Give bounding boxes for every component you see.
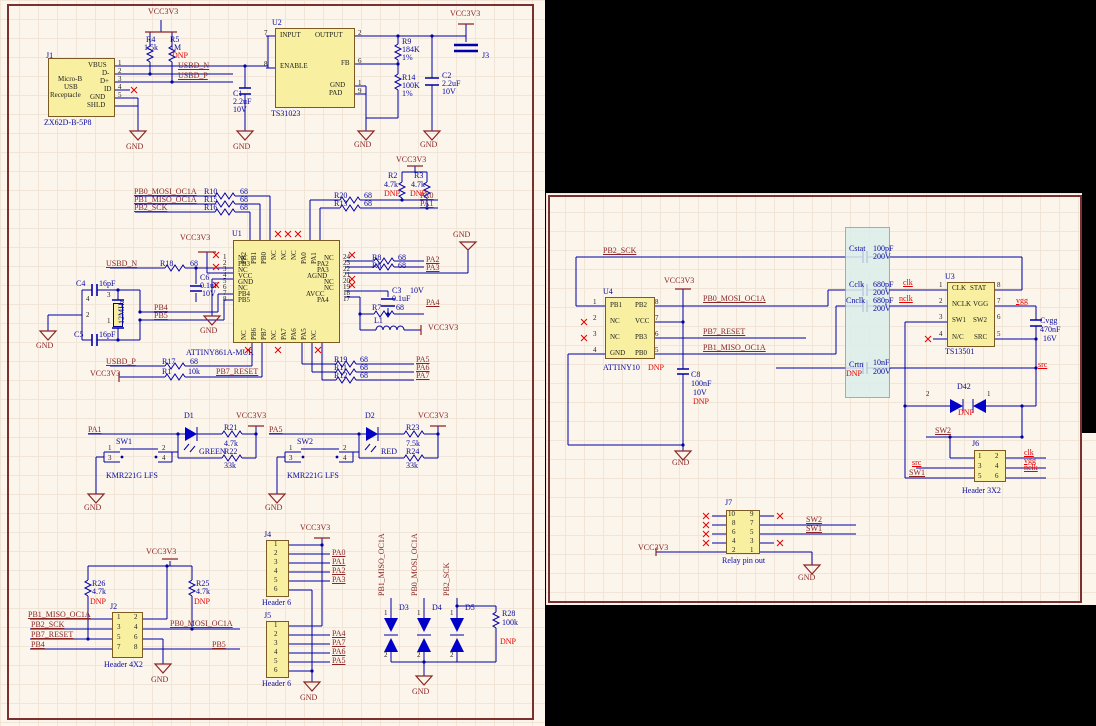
pin-number: 5 (655, 347, 659, 354)
pin-number: 3 (939, 314, 943, 321)
designator-label: ATTINY861A-MUR (186, 349, 254, 357)
pin-name: ID (104, 86, 111, 93)
pin-number: 4 (86, 296, 90, 303)
net-label: PA6 (332, 648, 346, 656)
designator-label: R1 (162, 368, 171, 376)
designator-label: TS13501 (945, 348, 974, 356)
power-label: GND (126, 143, 143, 151)
pin-number: 9 (750, 511, 754, 518)
net-label: PA3 (332, 576, 346, 584)
pin-name: Receptacle (50, 92, 81, 99)
pin-number: 5 (997, 331, 1001, 338)
pin-number: 3 (289, 455, 293, 462)
designator-label: Cvgg (1040, 317, 1057, 325)
power-label: GND (200, 327, 217, 335)
pin-name: PB3 (635, 334, 647, 341)
power-label: VCC3V3 (664, 277, 694, 285)
designator-label: TS31023 (271, 110, 300, 118)
designator-label: 10V (693, 389, 707, 397)
pin-number: 1 (274, 541, 278, 548)
designator-label: 68 (398, 262, 406, 270)
designator-label: 16pF (99, 280, 115, 288)
pin-number: 3 (274, 640, 278, 647)
pin-number: 6 (274, 667, 278, 674)
pin-number: 4 (995, 463, 999, 470)
signal-label: src (1038, 361, 1047, 369)
net-label: PB5 (154, 312, 168, 320)
designator-label: 200V (873, 253, 891, 261)
designator-label: 10V (233, 106, 247, 114)
signal-label: vgg (1016, 297, 1028, 305)
pin-name-vertical: PB6 (251, 328, 258, 340)
net-label-vertical: PB1_MISO_OC1A (378, 533, 386, 596)
designator-label: D3 (399, 604, 409, 612)
pin-number: 2 (162, 445, 166, 452)
schematic-sheet-right[interactable]: PB2_SCKU4ATTINY10DNP12348765PB1NCNCGNDPB… (546, 193, 1096, 605)
power-label: GND (84, 504, 101, 512)
net-label: PB1_MISO_OC1A (703, 344, 766, 352)
designator-label: 33k (224, 462, 236, 470)
dnp-flag: DNP (172, 52, 188, 60)
designator-label: Crtn (849, 361, 863, 369)
dnp-flag: DNP (846, 370, 862, 378)
net-label: PB7_RESET (216, 368, 258, 376)
pin-number: 4 (274, 649, 278, 656)
power-label: GND (453, 231, 470, 239)
designator-label: R7 (372, 304, 381, 312)
pin-name: PAD (329, 90, 342, 97)
net-label: USBD_P (106, 358, 136, 366)
pin-name: SRC (974, 334, 987, 341)
net-label: PA1 (420, 200, 434, 208)
pin-number: 4 (343, 455, 347, 462)
designator-label: SW2 (297, 438, 313, 446)
net-label: PA4 (332, 630, 346, 638)
pin-name: STAT (970, 285, 986, 292)
pin-name: D- (102, 70, 109, 77)
power-label: GND (233, 143, 250, 151)
net-label: PA1 (88, 426, 102, 434)
pin-number: 2 (939, 298, 943, 305)
pin-number: 2 (417, 652, 421, 659)
pin-number: 17 (343, 296, 350, 303)
pin-number: 2 (274, 550, 278, 557)
signal-label: nclk (1024, 464, 1038, 472)
pin-number: 4 (162, 455, 166, 462)
designator-label: D1 (184, 412, 194, 420)
designator-label: 16V (1043, 335, 1057, 343)
designator-label: Header 6 (262, 680, 291, 688)
pin-number: 1 (384, 610, 388, 617)
designator-label: 4.7k (384, 181, 398, 189)
designator-label: 0.1uF (392, 295, 410, 303)
dnp-flag: DNP (500, 638, 516, 646)
pin-number: 2 (995, 453, 999, 460)
pin-name: PB1 (610, 302, 622, 309)
power-label: GND (265, 504, 282, 512)
pin-number: 6 (732, 529, 736, 536)
net-label: PA7 (332, 639, 346, 647)
solder-jumper-J3 (454, 45, 478, 51)
pin-name: PB5 (238, 297, 250, 304)
schematic-sheet-left[interactable]: VCC3V3R41.5kR51MDNPJ1VBUSD-D+IDGNDSHLDMi… (0, 0, 545, 726)
pin-number: 7 (264, 30, 268, 37)
pin-name: PA4 (317, 297, 329, 304)
designator-label: KMR221G LFS (106, 472, 158, 480)
net-label: SW2 (935, 427, 951, 435)
pin-number: 4 (134, 624, 138, 631)
pin-number: 2 (343, 445, 347, 452)
dnp-flag: DNP (693, 398, 709, 406)
pin-number: 6 (134, 634, 138, 641)
pin-number: 6 (995, 473, 999, 480)
net-label: PB4 (31, 641, 45, 649)
pin-name: OUTPUT (315, 32, 343, 39)
designator-label: J6 (972, 440, 979, 448)
pin-number: 4 (118, 84, 122, 91)
designator-label: 68 (360, 372, 368, 380)
designator-label: R21 (224, 424, 237, 432)
dnp-flag: DNP (90, 598, 106, 606)
designator-label: R13 (334, 200, 347, 208)
net-label: PA2 (332, 567, 346, 575)
power-label: GND (300, 694, 317, 702)
designator-label: C5 (74, 331, 83, 339)
designator-label: R28 (502, 610, 515, 618)
pin-name-vertical: NC (311, 330, 318, 340)
power-label: GND (151, 676, 168, 684)
net-label: PA5 (332, 657, 346, 665)
power-label: VCC3V3 (638, 544, 668, 552)
pin-number: 4 (732, 538, 736, 545)
power-label: GND (798, 574, 815, 582)
pin-name: NCLK (952, 301, 971, 308)
designator-label: RED (381, 448, 397, 456)
designator-label: R6 (372, 262, 381, 270)
designator-label: 4.7k (411, 181, 425, 189)
pin-number: 1 (274, 622, 278, 629)
pin-number: 1 (417, 610, 421, 617)
designator-label: 4.7k (196, 588, 210, 596)
net-label: PA4 (426, 299, 440, 307)
designator-label: Cclk (849, 281, 864, 289)
designator-label: R16 (204, 204, 217, 212)
pin-number: 3 (107, 292, 111, 299)
schematic-editor-canvas: { "colors":{"background":"#000000","shee… (0, 0, 1096, 726)
designator-label: GREEN (199, 448, 226, 456)
pin-name: D+ (100, 78, 109, 85)
dnp-flag: DNP (958, 409, 974, 417)
designator-label: J1 (46, 52, 53, 60)
pin-number: 2 (134, 614, 138, 621)
pin-number: 3 (108, 455, 112, 462)
power-label: GND (672, 459, 689, 467)
designator-label: ATTINY10 (603, 364, 640, 372)
designator-label: L1 (374, 317, 383, 325)
power-label: VCC3V3 (236, 412, 266, 420)
designator-label: Header 3X2 (962, 487, 1001, 495)
pin-name-vertical: NC (291, 250, 298, 260)
pin-number: 6 (655, 331, 659, 338)
pin-number: 2 (926, 391, 930, 398)
designator-label: 68 (190, 260, 198, 268)
net-label: PB1_MISO_OC1A (28, 611, 91, 619)
pin-name: SW2 (973, 317, 987, 324)
designator-label: U2 (272, 19, 282, 27)
value-label-vertical: 12MHz (118, 300, 126, 324)
designator-label: 68 (240, 204, 248, 212)
net-label: PA5 (269, 426, 283, 434)
designator-label: D42 (957, 383, 971, 391)
pin-number: 3 (978, 463, 982, 470)
designator-label: C4 (76, 280, 85, 288)
pin-name: VCC (635, 318, 649, 325)
designator-label: 10V (410, 287, 424, 295)
designator-label: KMR221G LFS (287, 472, 339, 480)
designator-label: 68 (364, 200, 372, 208)
net-label: PB0_MOSI_OC1A (170, 620, 233, 628)
pin-number: 5 (118, 92, 122, 99)
designator-label: Relay pin out (722, 557, 765, 565)
pin-name-vertical: PB0 (261, 252, 268, 264)
designator-label: R22 (224, 448, 237, 456)
designator-label: J7 (725, 499, 732, 507)
pin-number: 2 (358, 30, 362, 37)
pin-name-vertical: PA0 (301, 252, 308, 264)
pin-number: 7 (997, 298, 1001, 305)
power-label: VCC3V3 (450, 10, 480, 18)
pin-name: PB2 (635, 302, 647, 309)
pin-number: 3 (274, 559, 278, 566)
designator-label: D4 (432, 604, 442, 612)
pin-name: GND (610, 350, 625, 357)
net-label: PB0_MOSI_OC1A (703, 295, 766, 303)
pin-number: 1 (750, 547, 754, 554)
dnp-flag: DNP (384, 190, 400, 198)
pin-name: NC (610, 334, 620, 341)
signal-label: nclk (899, 295, 913, 303)
designator-label: Header 4X2 (104, 661, 143, 669)
designator-label: 10k (188, 368, 200, 376)
designator-label: D5 (465, 604, 475, 612)
designator-label: R2 (388, 172, 397, 180)
designator-label: R12 (334, 372, 347, 380)
pin-number: 2 (732, 547, 736, 554)
pin-number: 1 (593, 299, 597, 306)
designator-label: R23 (406, 424, 419, 432)
pin-name: SW1 (952, 317, 966, 324)
pin-name-vertical: PA5 (301, 328, 308, 340)
designator-label: 10V (202, 290, 216, 298)
pin-number: 1 (939, 282, 943, 289)
designator-label: J5 (264, 612, 271, 620)
net-label-vertical: PB0_MOSI_OC1A (411, 533, 419, 596)
pin-number: 1 (289, 445, 293, 452)
designator-label: J4 (264, 531, 271, 539)
designator-label: R24 (406, 448, 419, 456)
pin-number: 2 (450, 652, 454, 659)
pin-name-vertical: PB1 (251, 252, 258, 264)
pin-number: 7 (750, 520, 754, 527)
designator-label: 1% (402, 54, 413, 62)
pin-name: ENABLE (280, 63, 308, 70)
dnp-flag: DNP (648, 364, 664, 372)
pin-number: 1 (107, 318, 111, 325)
designator-label: D2 (365, 412, 375, 420)
pin-number: 4 (274, 568, 278, 575)
pin-number: 3 (117, 624, 121, 631)
pin-name: VBUS (88, 62, 107, 69)
pin-number: 1 (118, 60, 122, 67)
pin-name-vertical: PA7 (281, 328, 288, 340)
net-label: PB5 (212, 641, 226, 649)
designator-label: ZX62D-B-5P8 (44, 119, 92, 127)
pin-name: NC (610, 318, 620, 325)
pin-name: GND (330, 82, 345, 89)
power-label: VCC3V3 (428, 324, 458, 332)
pin-number: 1 (108, 445, 112, 452)
designator-label: 1% (402, 90, 413, 98)
power-label: GND (420, 141, 437, 149)
dnp-flag: DNP (410, 190, 426, 198)
designator-label: 33k (406, 462, 418, 470)
designator-label: C8 (691, 371, 700, 379)
designator-label: 100nF (691, 380, 711, 388)
designator-label: 68 (396, 304, 404, 312)
pin-number: 6 (274, 586, 278, 593)
power-label: GND (412, 688, 429, 696)
pin-number: 3 (118, 76, 122, 83)
pin-number: 8 (997, 282, 1001, 289)
pin-number: 2 (86, 312, 90, 319)
pin-name: VGG (973, 301, 988, 308)
pin-name-vertical: NC (271, 330, 278, 340)
designator-label: 200V (873, 368, 891, 376)
net-label: PA3 (426, 264, 440, 272)
net-label: SW2 (806, 516, 822, 524)
window-edge (1082, 193, 1096, 433)
designator-label: J3 (482, 52, 489, 60)
pin-name: SHLD (87, 102, 105, 109)
pin-number: 6 (358, 58, 362, 65)
net-label: PB2_SCK (603, 247, 636, 255)
pin-number: 2 (384, 652, 388, 659)
power-label: VCC3V3 (300, 524, 330, 532)
pin-number: 3 (750, 538, 754, 545)
pin-number: 10 (728, 511, 735, 518)
net-label: PB7_RESET (31, 631, 73, 639)
net-label: SW1 (909, 469, 925, 477)
designator-label: Cnclk (846, 297, 865, 305)
pin-number: 8 (223, 296, 227, 303)
pin-number: 1 (117, 614, 121, 621)
designator-label: R17 (162, 358, 175, 366)
designator-label: U4 (603, 288, 613, 296)
net-label: PA7 (416, 372, 430, 380)
pin-number: 9 (358, 88, 362, 95)
designator-label: Cstat (849, 245, 865, 253)
power-label: VCC3V3 (90, 370, 120, 378)
pin-number: 3 (593, 331, 597, 338)
pin-name-vertical: PA1 (311, 252, 318, 264)
pin-number: 5 (274, 577, 278, 584)
pin-number: 2 (274, 631, 278, 638)
pin-name: GND (90, 94, 105, 101)
signal-label: src (912, 459, 921, 467)
signal-label: clk (903, 279, 913, 287)
designator-label: 100k (502, 619, 518, 627)
dnp-flag: DNP (194, 598, 210, 606)
pin-number: 1 (978, 453, 982, 460)
pin-number: 4 (593, 347, 597, 354)
designator-label: J2 (110, 603, 117, 611)
pin-name: USB (64, 84, 78, 91)
pin-name-vertical: PB7 (261, 328, 268, 340)
pin-name-vertical: PB2 (241, 252, 248, 264)
net-label: USBD_N (106, 260, 137, 268)
net-label: PB2_SCK (31, 621, 64, 629)
power-label: VCC3V3 (180, 234, 210, 242)
pin-number: 8 (655, 299, 659, 306)
pin-name-vertical: NC (281, 250, 288, 260)
pin-number: 7 (117, 644, 121, 651)
pin-name: CLK (952, 285, 966, 292)
pin-name: N/C (952, 334, 964, 341)
pin-number: 8 (264, 61, 268, 68)
inductor-L1 (376, 326, 404, 330)
power-label: GND (36, 342, 53, 350)
pin-number: 2 (118, 68, 122, 75)
designator-label: 470nF (1040, 326, 1060, 334)
designator-label: R3 (414, 172, 423, 180)
power-label: VCC3V3 (146, 548, 176, 556)
pin-number: 5 (750, 529, 754, 536)
net-label: PA0 (332, 549, 346, 557)
net-label-vertical: PB2_SCK (443, 563, 451, 596)
net-label: SW1 (806, 525, 822, 533)
pin-name: INPUT (280, 32, 301, 39)
pin-number: 5 (117, 634, 121, 641)
net-label: PA1 (332, 558, 346, 566)
power-label: VCC3V3 (396, 156, 426, 164)
designator-label: 68 (190, 358, 198, 366)
pin-name: Micro-B (58, 76, 82, 83)
pin-number: 5 (978, 473, 982, 480)
power-label: VCC3V3 (418, 412, 448, 420)
pin-name: NC (324, 285, 334, 292)
pin-number: 7 (655, 315, 659, 322)
designator-label: 1.5k (144, 44, 158, 52)
designator-label: Header 6 (262, 599, 291, 607)
designator-label: 10nF (873, 359, 889, 367)
net-label: USBD_N (178, 62, 209, 70)
pin-name: FB (341, 60, 350, 67)
power-label: VCC3V3 (148, 8, 178, 16)
designator-label: U3 (945, 273, 955, 281)
pin-name-vertical: PA6 (291, 328, 298, 340)
pin-name-vertical: NC (241, 330, 248, 340)
designator-label: U1 (232, 230, 242, 238)
pin-number: 2 (593, 315, 597, 322)
designator-label: R18 (160, 260, 173, 268)
pin-number: 5 (274, 658, 278, 665)
pin-number: 1 (358, 80, 362, 87)
power-label: GND (354, 141, 371, 149)
designator-label: 200V (873, 305, 891, 313)
net-label: USBD_P (178, 72, 208, 80)
pin-number: 8 (134, 644, 138, 651)
net-label: PB2_SCK (134, 204, 167, 212)
